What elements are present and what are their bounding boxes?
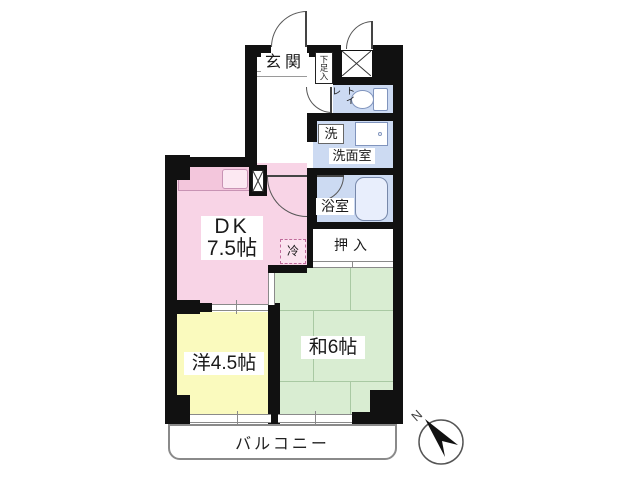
tatami-line (275, 381, 393, 382)
shoe-cabinet-box: 下足入 (315, 52, 333, 84)
pipe-space-box (252, 170, 264, 192)
wall (196, 303, 212, 312)
wall (165, 157, 257, 167)
pipe-space-x-icon (253, 171, 263, 191)
sliding-door-dk-japanese (268, 273, 275, 305)
closet-sliding-tick (352, 261, 353, 268)
laundry-label: 洗 (324, 127, 337, 141)
closet-sliding-door (313, 261, 393, 268)
vanity-sink (355, 122, 388, 146)
wall (307, 121, 317, 142)
wall (352, 412, 397, 424)
wall (268, 303, 280, 424)
western-room-label: 洋4.5帖 (184, 352, 264, 375)
shoe-cabinet-label: 下足入 (318, 55, 330, 81)
closet-label-text: 押入 (334, 238, 372, 253)
closet-label: 押入 (330, 236, 376, 254)
japanese-room-label: 和6帖 (301, 336, 365, 359)
sliding-door-dk-western (212, 304, 268, 311)
bathroom-label-text: 浴室 (321, 199, 349, 214)
wall (307, 222, 393, 229)
japanese-room-label-text: 和6帖 (309, 338, 358, 358)
wall (165, 395, 190, 424)
wall (165, 157, 177, 424)
laundry-box: 洗 (318, 124, 344, 144)
wall (307, 168, 393, 175)
entrance-door-leaf (305, 11, 307, 47)
shaft-box (341, 50, 373, 78)
bathroom-door-leaf (317, 175, 344, 177)
toilet-label-text: トイレ (328, 86, 356, 113)
western-room-label-text: 洋4.5帖 (192, 354, 256, 374)
wall (245, 45, 257, 167)
shaft-x-icon (342, 51, 371, 76)
washroom-label: 洗面室 (329, 148, 375, 164)
toilet-tank (373, 88, 388, 111)
entrance-label-text: 玄関 (265, 55, 305, 72)
balcony: バルコニー (168, 424, 397, 460)
wall (307, 113, 393, 121)
sliding-door-tick (236, 300, 237, 314)
kitchen-sink (222, 169, 248, 189)
entrance-label: 玄関 (261, 53, 309, 73)
refrigerator-box: 冷 (280, 239, 306, 264)
dk-door-leaf (267, 175, 307, 177)
dk-label: DK 7.5帖 (201, 216, 263, 260)
vanity-faucet-dot (378, 132, 382, 136)
bathroom-label: 浴室 (316, 198, 354, 215)
entrance-door-arc (271, 11, 307, 47)
wall (333, 77, 393, 85)
tatami-line (350, 268, 351, 310)
bathtub (355, 177, 388, 221)
window-western-room (190, 414, 271, 423)
tatami-line (275, 310, 393, 311)
tatami-line (350, 381, 351, 414)
shaft-door-arc (346, 21, 373, 49)
floor-plan: バルコニー 玄関 下足入 トイレ 洗 洗面室 浴室 押入 DK 7.5帖 冷 和… (0, 0, 640, 480)
refrigerator-label: 冷 (287, 245, 299, 258)
washroom-label-text: 洗面室 (332, 149, 371, 163)
wall (268, 265, 307, 273)
dk-label-line1: DK (214, 216, 249, 238)
wall (393, 45, 403, 424)
compass: N (410, 406, 472, 468)
balcony-label: バルコニー (235, 430, 330, 454)
toilet-label: トイレ (335, 86, 348, 113)
dk-label-line2: 7.5帖 (207, 238, 257, 260)
wall (271, 412, 278, 424)
wall (165, 300, 200, 314)
